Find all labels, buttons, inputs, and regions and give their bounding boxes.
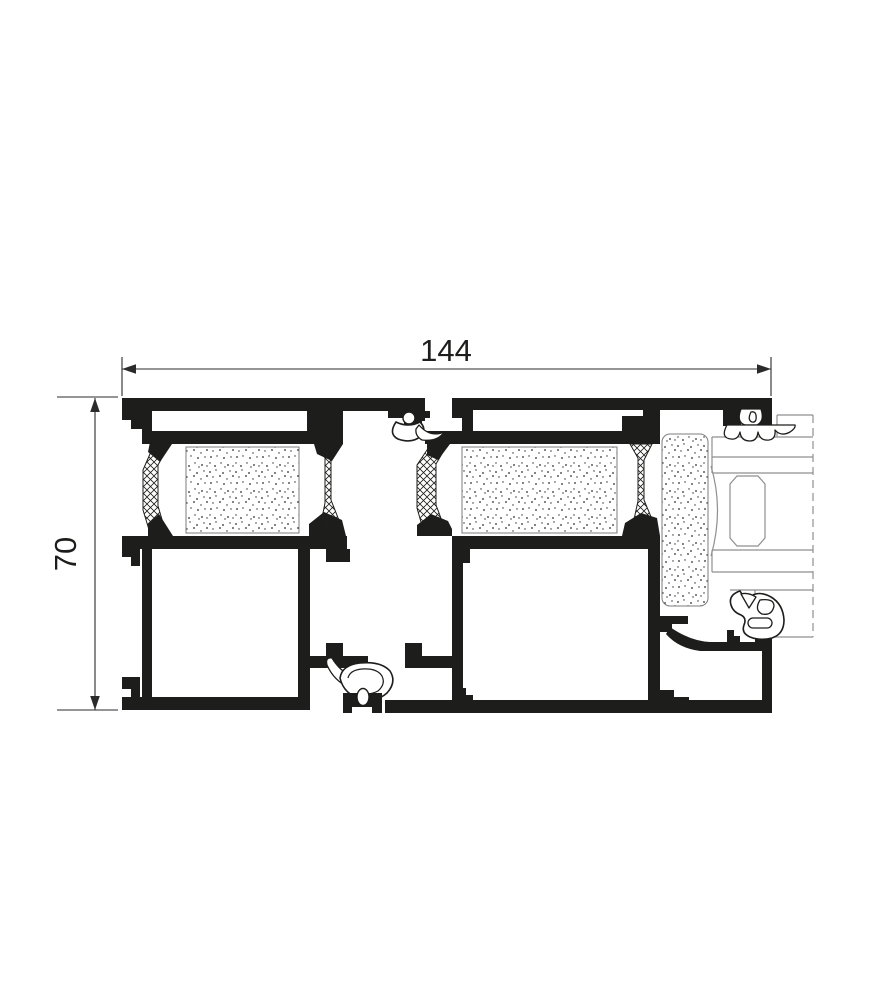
upper-step	[307, 411, 343, 444]
gasket-body	[730, 591, 784, 639]
gasket-ledge-tab	[405, 643, 422, 656]
insulation-foam-block	[462, 447, 617, 533]
arrowhead-right	[757, 364, 771, 374]
gasket-ledge	[405, 656, 463, 668]
lower-left-wall	[142, 549, 152, 697]
thermal-break-strut	[143, 447, 168, 533]
arrowhead-down	[90, 696, 100, 710]
lower-right-wall	[648, 549, 660, 703]
upper-right-block	[622, 416, 660, 444]
left-frame-profile	[122, 398, 425, 710]
top-bar	[122, 398, 425, 411]
bottom-right-gasket	[730, 591, 784, 639]
width-dimension: 144	[122, 333, 771, 396]
glazing-bead-step	[660, 616, 688, 632]
bottom-bar	[385, 700, 772, 713]
right-frame-profile	[385, 398, 772, 713]
upper-right-wall	[643, 405, 660, 416]
bottom-hook	[660, 690, 689, 703]
middle-right-fin	[326, 549, 350, 562]
phantom-arc	[711, 466, 718, 556]
thermal-break-strut	[417, 447, 446, 529]
gasket-slot	[748, 618, 772, 628]
gasket-hole	[749, 412, 756, 422]
insulation-foam-block	[186, 447, 299, 533]
middle-left-hook	[122, 549, 140, 566]
glazing-bead-wall	[762, 642, 772, 705]
bottom-left-hook	[122, 677, 140, 697]
gasket-ledge-tab	[326, 643, 343, 656]
top-bar-lip	[452, 410, 462, 418]
middle-bar	[122, 536, 347, 549]
gasket-fins	[724, 425, 795, 441]
upper-left-wall	[142, 411, 152, 431]
gasket-hole	[757, 600, 774, 615]
gasket-hole	[357, 689, 369, 706]
lower-left-wall	[452, 549, 463, 703]
bottom-bar	[122, 697, 310, 710]
glazing-bead-hook	[727, 630, 740, 642]
top-bar	[452, 398, 772, 410]
width-dimension-label: 144	[420, 333, 472, 368]
left-profile-insulation	[143, 444, 342, 533]
height-dimension-label: 70	[48, 537, 83, 571]
center-top-gasket	[388, 411, 444, 441]
center-bottom-gasket	[327, 658, 393, 713]
technical-drawing-page: 144 70	[0, 0, 875, 1000]
top-right-gasket	[723, 409, 795, 441]
height-dimension: 70	[48, 397, 118, 710]
thermal-break-strut	[630, 444, 654, 524]
arrowhead-left	[122, 364, 136, 374]
middle-bar	[452, 536, 660, 549]
glazing-foam-packer	[662, 434, 708, 606]
profile-cross-section-drawing: 144 70	[0, 0, 875, 1000]
phantom-hardware-pocket	[730, 476, 765, 546]
lower-right-wall	[298, 549, 310, 697]
arrowhead-up	[90, 398, 100, 412]
gasket-hole	[403, 412, 415, 424]
upper-column	[462, 410, 473, 431]
